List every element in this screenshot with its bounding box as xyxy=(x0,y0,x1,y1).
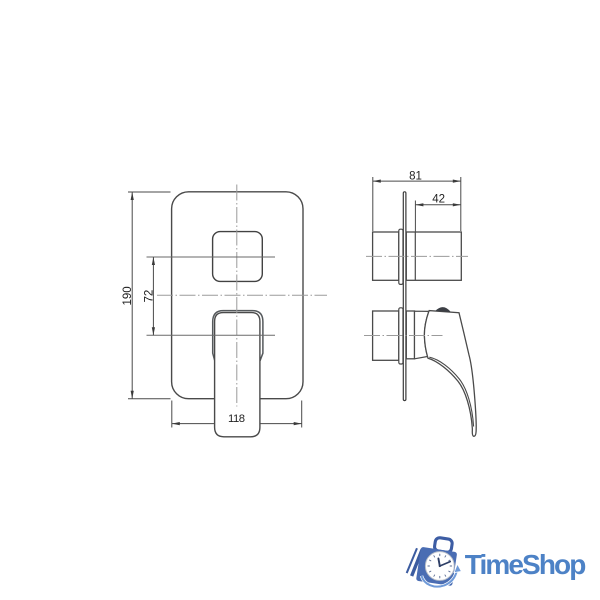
svg-text:72: 72 xyxy=(144,290,156,303)
svg-text:81: 81 xyxy=(409,170,422,182)
svg-text:42: 42 xyxy=(432,193,445,205)
svg-text:190: 190 xyxy=(122,286,134,305)
svg-text:118: 118 xyxy=(228,413,245,425)
svg-text:TimeShop: TimeShop xyxy=(465,549,585,580)
